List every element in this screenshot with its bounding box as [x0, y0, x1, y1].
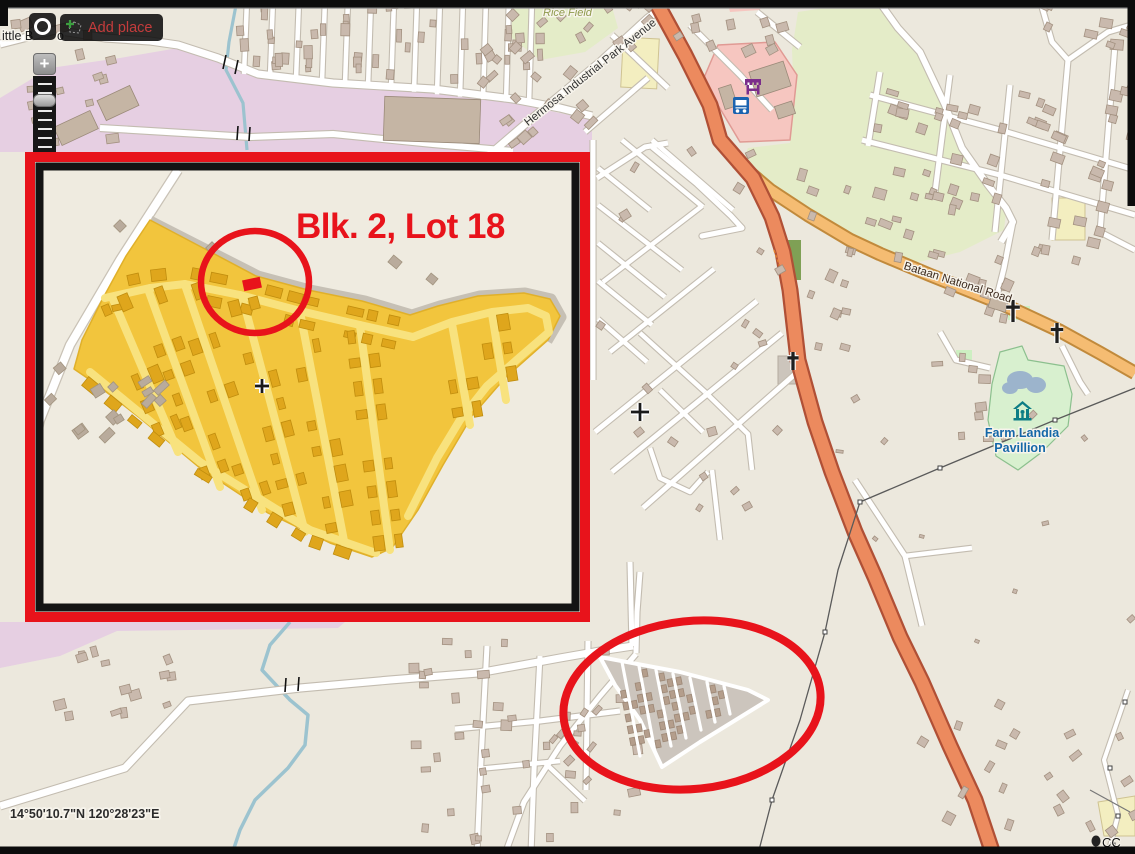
bus-station-icon	[733, 97, 749, 114]
coordinates-label: 14°50'10.7"N 120°28'23"E	[10, 807, 159, 821]
geolocate-icon	[34, 18, 51, 35]
geolocate-button[interactable]	[29, 13, 56, 40]
zoom-slider-track[interactable]	[33, 76, 56, 152]
map-canvas[interactable]: ittle B o Rice Field Hermosa Industrial …	[0, 0, 1135, 854]
farm-landia-label-line1: Farm Landia	[985, 426, 1060, 440]
rice-field-label: Rice Field	[543, 7, 593, 19]
add-place-button[interactable]: Add place	[60, 14, 163, 41]
map-stage[interactable]: ittle B o Rice Field Hermosa Industrial …	[0, 0, 1135, 854]
inset-overlay: Blk. 2, Lot 18	[28, 157, 585, 617]
add-place-label: Add place	[88, 20, 153, 36]
zoom-in-button[interactable]: +	[33, 53, 56, 75]
add-place-icon	[66, 19, 83, 36]
zoom-slider-ticks	[38, 76, 52, 152]
farm-landia-label-line2: Pavillion	[994, 441, 1045, 455]
inset-callout-label: Blk. 2, Lot 18	[296, 207, 505, 246]
zoom-slider-handle[interactable]	[33, 94, 56, 107]
